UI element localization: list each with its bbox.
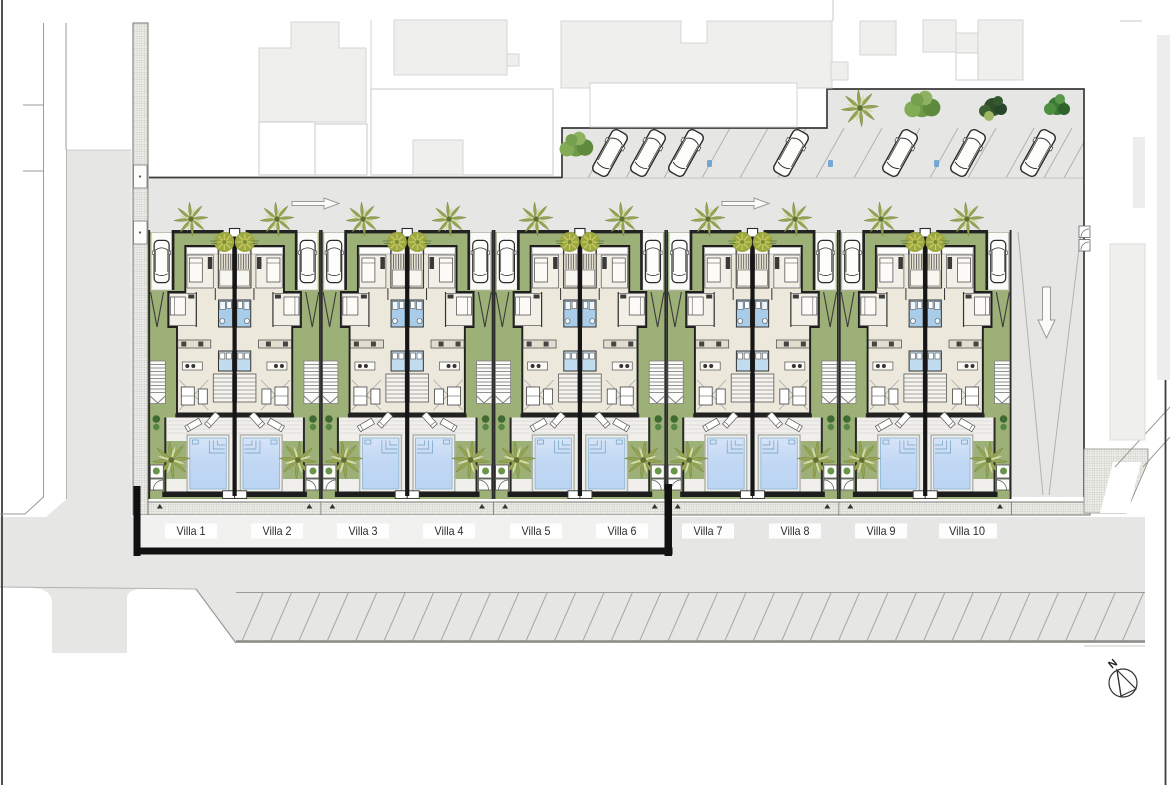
svg-text:Villa 9: Villa 9 <box>867 524 896 538</box>
svg-text:Villa 5: Villa 5 <box>522 524 551 538</box>
svg-text:Villa 7: Villa 7 <box>694 524 723 538</box>
svg-text:Villa 6: Villa 6 <box>608 524 637 538</box>
svg-text:Villa 8: Villa 8 <box>781 524 810 538</box>
svg-text:Villa 1: Villa 1 <box>177 524 206 538</box>
svg-text:Villa 4: Villa 4 <box>435 524 464 538</box>
svg-text:Villa 10: Villa 10 <box>949 524 985 538</box>
svg-text:Villa 2: Villa 2 <box>263 524 292 538</box>
svg-text:Villa 3: Villa 3 <box>349 524 378 538</box>
